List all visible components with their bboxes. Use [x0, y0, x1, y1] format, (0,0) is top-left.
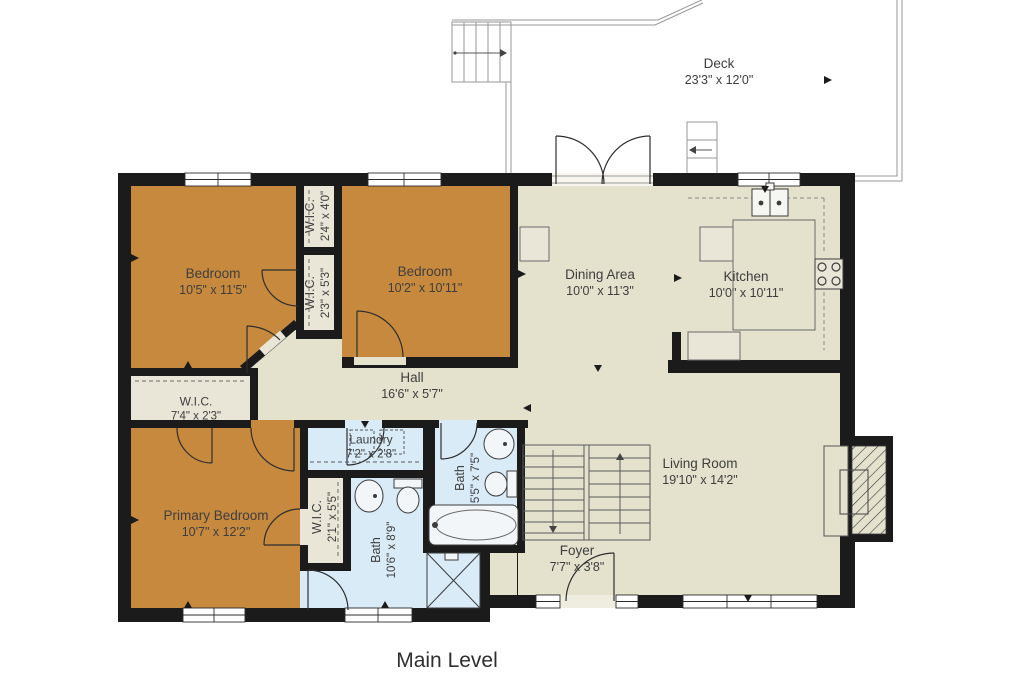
room-name: Hall	[381, 370, 443, 387]
room-dims: 2'4" x 4'0"	[319, 191, 333, 241]
room-name: Bath	[453, 453, 469, 503]
room-name: W.I.C.	[303, 191, 319, 241]
sink-bath-2	[355, 480, 383, 512]
room-label-living: Living Room 19'10" x 14'2"	[662, 456, 738, 489]
room-name: Primary Bedroom	[163, 508, 268, 525]
room-label-kitchen: Kitchen 10'0" x 10'11"	[709, 269, 784, 302]
window	[183, 608, 245, 622]
stove	[815, 259, 843, 289]
fireplace	[824, 436, 893, 542]
deck-arrows	[453, 49, 696, 154]
room-label-laundry: Laundry 7'2" x 2'8"	[346, 432, 396, 461]
room-name: W.I.C.	[171, 394, 221, 409]
room-dims: 2'3" x 5'3"	[319, 268, 333, 318]
room-dims: 10'6" x 8'9"	[385, 522, 399, 579]
room-name: Laundry	[346, 432, 396, 447]
room-name: Deck	[685, 56, 754, 73]
floorplan-canvas: Deck 23'3" x 12'0" Bedroom 10'5" x 11'5"…	[0, 0, 1024, 681]
room-name: Kitchen	[709, 269, 784, 286]
room-label-dining: Dining Area 10'0" x 11'3"	[565, 267, 635, 300]
floor-level-title: Main Level	[396, 649, 498, 673]
room-label-deck: Deck 23'3" x 12'0"	[685, 56, 754, 89]
room-label-wic-1: W.I.C. 2'4" x 4'0"	[303, 191, 333, 241]
room-name: Living Room	[662, 456, 738, 473]
window	[185, 173, 251, 186]
room-dims: 7'4" x 2'3"	[171, 409, 221, 423]
sink-bath-1	[484, 429, 514, 459]
room-dims: 23'3" x 12'0"	[685, 73, 754, 89]
room-dims: 10'0" x 10'11"	[709, 286, 784, 302]
room-dims: 7'2" x 2'8"	[346, 447, 396, 461]
toilet-bath-1	[485, 471, 517, 497]
room-label-wic-2: W.I.C. 2'3" x 5'3"	[303, 268, 333, 318]
room-dims: 10'0" x 11'3"	[565, 284, 635, 300]
room-label-bedroom-2: Bedroom 10'2" x 10'11"	[388, 264, 463, 297]
room-label-hall: Hall 16'6" x 5'7"	[381, 370, 443, 403]
room-label-bedroom-1: Bedroom 10'5" x 11'5"	[179, 266, 247, 299]
room-name: W.I.C.	[310, 492, 326, 542]
window	[536, 595, 560, 608]
room-dims: 10'7" x 12'2"	[163, 525, 268, 541]
room-dims: 16'6" x 5'7"	[381, 387, 443, 403]
room-name: Bedroom	[179, 266, 247, 283]
room-label-wic-3: W.I.C. 7'4" x 2'3"	[171, 394, 221, 423]
room-label-primary-bedroom: Primary Bedroom 10'7" x 12'2"	[163, 508, 268, 541]
room-dims: 7'7" x 3'8"	[550, 560, 605, 576]
fridge	[700, 227, 733, 261]
floorplan-svg	[0, 0, 1024, 681]
room-dims: 10'5" x 11'5"	[179, 283, 247, 299]
room-name: Bath	[369, 522, 385, 579]
room-name: W.I.C.	[303, 268, 319, 318]
cabinet	[688, 332, 740, 360]
hearth	[824, 446, 848, 536]
room-dims: 10'2" x 10'11"	[388, 281, 463, 297]
room-dims: 5'5" x 7'5"	[469, 453, 483, 503]
deck-outline	[452, 0, 902, 181]
bathtub	[429, 505, 518, 545]
room-dims: 19'10" x 14'2"	[662, 473, 738, 489]
window	[368, 173, 441, 186]
window	[345, 608, 412, 622]
window	[616, 595, 638, 608]
room-label-foyer: Foyer 7'7" x 3'8"	[550, 543, 605, 576]
room-label-bath-1: Bath 5'5" x 7'5"	[453, 453, 483, 503]
room-name: Foyer	[550, 543, 605, 560]
floor-foyer-strip	[490, 553, 517, 595]
room-name: Dining Area	[565, 267, 635, 284]
dining-cabinet	[520, 227, 549, 261]
room-name: Bedroom	[388, 264, 463, 281]
room-label-bath-2: Bath 10'6" x 8'9"	[369, 522, 399, 579]
room-label-wic-4: W.I.C. 2'1" x 5'5"	[310, 492, 340, 542]
room-dims: 2'1" x 5'5"	[326, 492, 340, 542]
